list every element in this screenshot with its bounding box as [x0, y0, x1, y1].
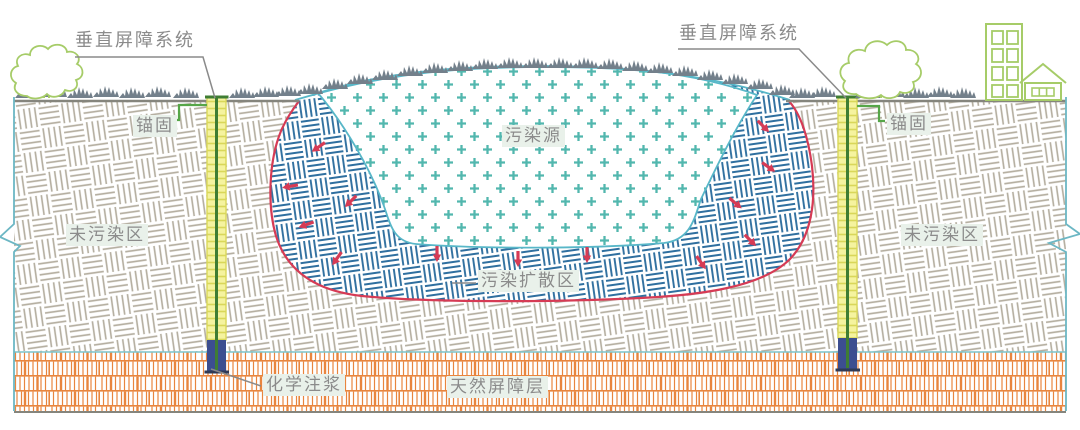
- label-anchor-left: 锚固: [133, 115, 177, 137]
- label-uncontaminated-right: 未污染区: [901, 224, 983, 246]
- cross-section-diagram: 垂直屏障系统 垂直屏障系统 锚固 锚固 未污染区 未污染区 污染源 污染扩散区 …: [0, 0, 1080, 430]
- tree-left-icon: [11, 45, 83, 99]
- label-vertical-barrier-left: 垂直屏障系统: [75, 29, 195, 52]
- label-chemical-grouting: 化学注浆: [263, 374, 345, 396]
- label-vertical-barrier-right: 垂直屏障系统: [679, 22, 799, 45]
- tree-right-icon: [840, 41, 921, 98]
- building-house-icon: [1020, 64, 1066, 100]
- right-barrier-wall: [836, 97, 861, 370]
- building-tower-icon: [986, 24, 1022, 100]
- label-pollution-spread-zone: 污染扩散区: [478, 270, 579, 292]
- label-uncontaminated-left: 未污染区: [66, 224, 148, 246]
- label-anchor-right: 锚固: [887, 113, 931, 135]
- diagram-canvas: [0, 0, 1080, 430]
- label-natural-barrier-layer: 天然屏障层: [447, 376, 548, 398]
- label-pollution-source: 污染源: [502, 125, 565, 147]
- left-barrier-wall: [205, 97, 230, 372]
